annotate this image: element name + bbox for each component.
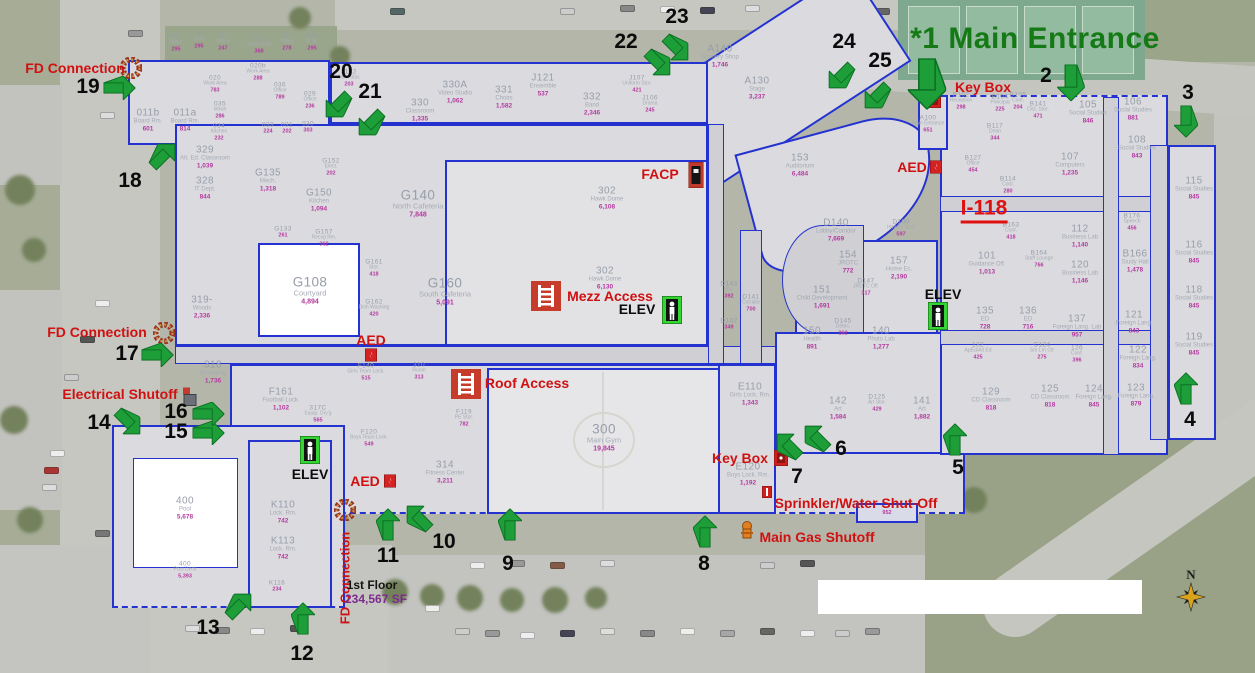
room-label: 119Social Studies845 bbox=[1175, 331, 1213, 356]
room-name: Study Hall bbox=[1121, 260, 1148, 267]
room-sqft: 362 bbox=[312, 241, 337, 247]
room-sqft: 303 bbox=[302, 128, 314, 134]
room-name: Band bbox=[583, 103, 601, 110]
parked-car bbox=[720, 630, 735, 637]
map-annotation: ELEV bbox=[292, 466, 329, 482]
room-label: 034Kitchen232 bbox=[211, 122, 228, 141]
entrance-number-5: 5 bbox=[952, 456, 964, 480]
room-number: E110 bbox=[729, 381, 770, 392]
entrance-number-4: 4 bbox=[1184, 408, 1196, 432]
room-label: F119PE Stor.782 bbox=[455, 408, 473, 427]
room-sqft: 772 bbox=[838, 267, 858, 274]
room-number: 101 bbox=[969, 250, 1006, 261]
map-annotation: FACP bbox=[641, 166, 678, 182]
room-sqft: 202 bbox=[322, 170, 340, 176]
room-name: Hawk Dome bbox=[591, 197, 624, 204]
green-arrow-icon bbox=[193, 402, 225, 426]
room-label: 107Computers1,235 bbox=[1055, 151, 1084, 176]
sprinkler-marker bbox=[762, 486, 772, 498]
room-sqft: 5,393 bbox=[174, 573, 197, 579]
aerial-ground bbox=[1214, 88, 1255, 450]
room-number: G140 bbox=[393, 187, 444, 202]
room-number: 125 bbox=[1030, 383, 1069, 394]
room-name: Mech. bbox=[255, 179, 281, 186]
room-label: 140Photo Lab1,277 bbox=[867, 325, 894, 350]
room-name: Foreign Lang. bbox=[1119, 356, 1156, 363]
parked-car bbox=[700, 7, 715, 14]
entrance-number-17: 17 bbox=[115, 342, 138, 366]
parked-car bbox=[95, 530, 110, 537]
green-arrow-icon bbox=[498, 509, 522, 541]
room-label: D100Hawk's Nest597 bbox=[887, 218, 915, 237]
tree bbox=[0, 406, 28, 434]
room-name: Choirs bbox=[495, 96, 513, 103]
room-sqft: 471 bbox=[1027, 113, 1049, 119]
room-label: 020aWork Area368 bbox=[247, 35, 270, 54]
map-annotation: Sprinkler/Water Shut-Off bbox=[775, 495, 938, 511]
room-label: J121Ensemble537 bbox=[530, 72, 557, 97]
room-name: Ensemble bbox=[530, 84, 557, 91]
room-name: Foreign Lang. bbox=[1075, 395, 1112, 402]
room-sqft: 1,102 bbox=[262, 404, 299, 411]
room-sqft: 262 bbox=[834, 330, 851, 336]
ladder-marker bbox=[451, 369, 481, 399]
room-number: 121 bbox=[1115, 309, 1152, 320]
room-name: Business Lab bbox=[1062, 235, 1098, 242]
room-label: 300Main Gym19,845 bbox=[587, 421, 621, 452]
room-number: 135 bbox=[976, 305, 994, 316]
room-name: Receiving bbox=[200, 371, 226, 378]
room-sqft: 295 bbox=[193, 43, 205, 49]
room-sqft: 2,346 bbox=[583, 109, 601, 116]
parked-car bbox=[44, 467, 59, 474]
room-sqft: 742 bbox=[269, 553, 296, 560]
room-label: 123Foreign Lang.879 bbox=[1117, 382, 1154, 407]
room-label: 129CD Classroom818 bbox=[971, 386, 1010, 411]
room-label: 118Social Studies845 bbox=[1175, 284, 1213, 309]
room-name: Alt. Ed. Classroom bbox=[180, 156, 230, 163]
tree bbox=[17, 507, 43, 533]
elevator-icon bbox=[928, 302, 948, 330]
map-annotation: N bbox=[1186, 567, 1195, 583]
room-name: Social Studies bbox=[1175, 296, 1213, 303]
map-annotation: FD Connection bbox=[47, 324, 147, 340]
room-label: 317CEquip. Dry'g565 bbox=[304, 404, 331, 423]
room-label: 314Fitness Center3,211 bbox=[425, 459, 464, 484]
room-label: G160South Cafeteria5,091 bbox=[419, 275, 471, 306]
room-label: 023Office247 bbox=[217, 32, 230, 51]
parked-car bbox=[390, 8, 405, 15]
room-sqft: 1,235 bbox=[1055, 169, 1084, 176]
room-label: 332Band2,346 bbox=[583, 91, 601, 116]
room-number: 124 bbox=[1075, 383, 1112, 394]
room-number: 302 bbox=[591, 185, 624, 196]
room-label: 115Social Studies845 bbox=[1175, 175, 1213, 200]
room-sqft: 288 bbox=[246, 75, 269, 81]
map-annotation: AED bbox=[897, 159, 927, 175]
room-number: 011a bbox=[171, 107, 200, 118]
room-number: G160 bbox=[419, 275, 471, 290]
room-sqft: 5,678 bbox=[176, 513, 194, 520]
room-label: 157Home Ec.2,190 bbox=[886, 255, 912, 280]
room-sqft: 368 bbox=[247, 48, 270, 54]
room-name: Girls Lock. Rm. bbox=[729, 393, 770, 400]
room-number: 153 bbox=[786, 152, 815, 163]
room-sqft: 6,108 bbox=[591, 203, 624, 210]
room-name: Foreign Lang. Lab bbox=[1053, 325, 1102, 332]
room-label: B127Office454 bbox=[965, 154, 982, 173]
room-label: 124Foreign Lang.845 bbox=[1075, 383, 1112, 408]
room-sqft: 19,845 bbox=[587, 445, 621, 453]
entrance-number-2: 2 bbox=[1040, 64, 1052, 88]
room-label: K116234 bbox=[269, 579, 285, 592]
entrance-number-12: 12 bbox=[290, 642, 313, 666]
room-label: 116Social Studies845 bbox=[1175, 239, 1213, 264]
room-sqft: 421 bbox=[622, 87, 651, 93]
room-label: G162Dish Washing420 bbox=[359, 298, 390, 317]
campus-emergency-map: 021Office295022Conf295023Office247020aWo… bbox=[0, 0, 1255, 673]
room-sqft: 818 bbox=[1030, 401, 1069, 408]
room-sqft: 537 bbox=[530, 90, 557, 97]
entrance-number-3: 3 bbox=[1182, 81, 1194, 105]
room-name: Art bbox=[913, 407, 931, 414]
room-label: 154JROTC772 bbox=[838, 249, 858, 274]
room-name: Health bbox=[803, 337, 821, 344]
room-name: Lobby/Corridor bbox=[816, 229, 856, 236]
room-sqft: 1,094 bbox=[306, 205, 332, 212]
map-annotation: I-118 bbox=[961, 197, 1008, 224]
room-number: 154 bbox=[838, 249, 858, 260]
room-name: Boys Lock. Rm. bbox=[727, 473, 769, 480]
green-arrow-icon bbox=[1057, 64, 1085, 101]
room-label: A140Scenery Shop1,746 bbox=[701, 43, 739, 68]
room-label: F120Boys Team Lock.549 bbox=[350, 428, 388, 447]
room-sqft: 1,039 bbox=[180, 162, 230, 169]
room-name: Main Gym bbox=[587, 436, 621, 444]
room-number: 115 bbox=[1175, 175, 1213, 186]
room-sqft: 766 bbox=[1025, 262, 1053, 268]
room-sqft: 1,736 bbox=[200, 377, 226, 384]
room-name: Child Development bbox=[797, 296, 848, 303]
room-sqft: 1,691 bbox=[797, 302, 848, 309]
parked-car bbox=[800, 560, 815, 567]
room-sqft: 1,146 bbox=[1062, 277, 1098, 284]
room-label: B164Staff Lounge766 bbox=[1025, 249, 1053, 268]
room-number: 123 bbox=[1117, 382, 1154, 393]
room-sqft: 1,582 bbox=[495, 102, 513, 109]
room-label: 330AVideo Studio1,062 bbox=[438, 79, 472, 104]
room-number: A140 bbox=[701, 43, 739, 54]
room-label: 141Art1,882 bbox=[913, 395, 931, 420]
entrance-arrow-9 bbox=[498, 509, 522, 546]
parked-car bbox=[455, 628, 470, 635]
map-annotation: AED bbox=[356, 332, 386, 348]
room-number: K110 bbox=[269, 499, 296, 510]
map-annotation: Electrical Shutoff bbox=[62, 386, 177, 402]
green-arrow-icon bbox=[1174, 106, 1198, 138]
room-sqft: 454 bbox=[965, 167, 982, 173]
room-sqft: 843 bbox=[1115, 327, 1152, 334]
parked-car bbox=[560, 630, 575, 637]
map-annotation: FD Connection bbox=[25, 60, 125, 76]
room-sqft: 275 bbox=[1030, 354, 1054, 360]
room-sqft: 2,336 bbox=[191, 312, 213, 319]
room-label: 318Receiving1,736 bbox=[200, 359, 226, 384]
room-sqft: 834 bbox=[1119, 362, 1156, 369]
room-sqft: 843 bbox=[1118, 152, 1156, 159]
room-sqft: 425 bbox=[965, 354, 992, 360]
room-label: 020Work Area783 bbox=[203, 74, 226, 93]
room-name: Home Ec. bbox=[886, 267, 912, 274]
room-sqft: 396 bbox=[1071, 357, 1083, 363]
tree bbox=[457, 585, 483, 611]
room-label: 011aBoard Rm.814 bbox=[171, 107, 200, 132]
entrance-number-10: 10 bbox=[432, 530, 455, 554]
room-name: Video Studio bbox=[438, 91, 472, 98]
room-name: Photo Lab bbox=[867, 337, 894, 344]
room-name: Social Studies bbox=[1175, 251, 1213, 258]
room-name: South Cafeteria bbox=[419, 290, 471, 298]
green-arrow-icon bbox=[104, 76, 136, 100]
room-label: D125Art Stor.429 bbox=[868, 393, 886, 412]
aerial-ground bbox=[0, 290, 62, 510]
room-label: 120Business Lab1,146 bbox=[1062, 259, 1098, 284]
room-sqft: 782 bbox=[455, 421, 473, 427]
room-sqft: 1,335 bbox=[406, 115, 435, 122]
room-number: G150 bbox=[306, 187, 332, 198]
room-name: Art bbox=[829, 407, 847, 414]
room-name: Lock. Rm. bbox=[269, 511, 296, 518]
room-label: 153Auditorium6,484 bbox=[786, 152, 815, 177]
aerial-ground bbox=[390, 555, 935, 673]
room-label: 302Hawk Dome6,130 bbox=[589, 265, 622, 290]
parked-car bbox=[95, 300, 110, 307]
room-sqft: 349 bbox=[720, 325, 737, 331]
room-sqft: 789 bbox=[274, 94, 287, 100]
room-label: B163Conf.418 bbox=[1003, 221, 1020, 240]
room-label: 036Office789 bbox=[274, 81, 287, 100]
gas-marker bbox=[740, 520, 754, 540]
room-label: K110Lock. Rm.742 bbox=[269, 499, 296, 524]
room-number: 122 bbox=[1119, 344, 1156, 355]
map-annotation: AED bbox=[350, 473, 380, 489]
entrance-number-9: 9 bbox=[502, 552, 514, 576]
room-name: North Cafeteria bbox=[393, 202, 444, 210]
room-label: 030303 bbox=[302, 120, 314, 133]
map-annotation: *1 Main Entrance bbox=[910, 22, 1160, 56]
room-label: 302Hawk Dome6,108 bbox=[591, 185, 624, 210]
room-name: IT Dept. bbox=[194, 187, 215, 194]
room-number: 031 bbox=[281, 121, 293, 128]
room-name: ED bbox=[1019, 317, 1037, 324]
room-name: Pool bbox=[176, 507, 194, 514]
room-label: D147JROTC Off.317 bbox=[853, 277, 879, 296]
room-label: D141Corridor700 bbox=[742, 293, 760, 312]
room-label: 031202 bbox=[281, 121, 293, 134]
ladder-access-icon bbox=[531, 281, 561, 311]
green-arrow-icon bbox=[693, 516, 717, 548]
parked-car bbox=[250, 628, 265, 635]
room-label: D143Stor.392 bbox=[720, 280, 737, 299]
room-name: Foreign Lang. bbox=[1115, 321, 1152, 328]
room-sqft: 515 bbox=[347, 375, 384, 381]
room-sqft: 236 bbox=[304, 103, 317, 109]
entrance-number-20: 20 bbox=[329, 60, 352, 84]
parked-car bbox=[550, 562, 565, 569]
room-sqft: 280 bbox=[1000, 188, 1016, 194]
entrance-arrow-12 bbox=[291, 603, 315, 640]
ladder-access-icon bbox=[451, 369, 481, 399]
entrance-number-8: 8 bbox=[698, 552, 710, 576]
room-label: B114Conf.280 bbox=[1000, 175, 1016, 194]
room-sqft: 295 bbox=[170, 46, 183, 52]
room-number: 329 bbox=[180, 144, 230, 155]
entrance-number-18: 18 bbox=[118, 169, 141, 193]
room-name: Guidance Off. bbox=[969, 262, 1006, 269]
room-number: 119 bbox=[1175, 331, 1213, 342]
parked-car bbox=[865, 628, 880, 635]
room-sqft: 420 bbox=[359, 311, 390, 317]
room-sqft: 2,190 bbox=[886, 273, 912, 280]
room-name: Courtyard bbox=[293, 289, 328, 297]
room-sqft: 845 bbox=[1175, 257, 1213, 264]
room-label: 122Foreign Lang.834 bbox=[1119, 344, 1156, 369]
room-sqft: 845 bbox=[1075, 401, 1112, 408]
room-number: B166 bbox=[1121, 248, 1148, 259]
room-sqft: 418 bbox=[365, 271, 383, 277]
room-label: C124Sm Lrn Ctr275 bbox=[1030, 341, 1054, 360]
parked-car bbox=[425, 605, 440, 612]
room-sqft: 818 bbox=[971, 404, 1010, 411]
room-number: 330 bbox=[406, 97, 435, 108]
room-sqft: 845 bbox=[1175, 349, 1213, 356]
tree bbox=[22, 238, 46, 262]
entrance-number-14: 14 bbox=[87, 411, 110, 435]
aed-icon bbox=[384, 475, 396, 488]
room-label: 108Social Studies843 bbox=[1118, 134, 1156, 159]
room-number: A130 bbox=[745, 75, 770, 86]
parked-car bbox=[560, 8, 575, 15]
room-name: Social Studies bbox=[1175, 343, 1213, 350]
aerial-ground bbox=[0, 85, 62, 185]
tree bbox=[500, 588, 524, 612]
room-name: Fitness Center bbox=[425, 471, 464, 478]
entrance-number-11: 11 bbox=[377, 544, 399, 568]
parked-car bbox=[760, 562, 775, 569]
room-sqft: 565 bbox=[304, 417, 331, 423]
room-sqft: 1,013 bbox=[969, 268, 1006, 275]
parked-car bbox=[760, 628, 775, 635]
room-name: CD Classroom bbox=[971, 398, 1010, 405]
room-label: 310Room313 bbox=[412, 361, 425, 380]
parked-car bbox=[470, 562, 485, 569]
room-name: Stage bbox=[745, 87, 770, 94]
room-label: G133261 bbox=[274, 225, 292, 238]
map-annotation: Key Box bbox=[712, 450, 768, 466]
aed-icon bbox=[930, 161, 942, 174]
room-number: 142 bbox=[829, 395, 847, 406]
room-sqft: 728 bbox=[976, 323, 994, 330]
room-number: 118 bbox=[1175, 284, 1213, 295]
room-number: D142 bbox=[720, 317, 737, 324]
green-arrow-icon bbox=[943, 424, 967, 456]
parked-car bbox=[600, 628, 615, 635]
room-name: Woods bbox=[191, 306, 213, 313]
entrance-number-21: 21 bbox=[358, 80, 381, 104]
room-number: 331 bbox=[495, 84, 513, 95]
aed-marker bbox=[365, 349, 377, 362]
room-sqft: 7,669 bbox=[816, 235, 856, 242]
room-label: 035Wksh286 bbox=[214, 100, 227, 119]
room-number: 302 bbox=[589, 265, 622, 276]
room-number: 129 bbox=[971, 386, 1010, 397]
room-label: G140North Cafeteria7,848 bbox=[393, 187, 444, 218]
room-number: K116 bbox=[269, 579, 285, 586]
room-sqft: 4,894 bbox=[293, 298, 328, 306]
room-number: 137 bbox=[1053, 313, 1102, 324]
room-label: 126Conf.396 bbox=[1071, 344, 1083, 363]
green-arrow-icon bbox=[142, 343, 174, 367]
room-name: Board Rm. bbox=[134, 119, 163, 126]
room-label: 011bBoard Rm.601 bbox=[134, 107, 163, 132]
room-number: G108 bbox=[293, 274, 328, 289]
room-name: Kitchen bbox=[306, 199, 332, 206]
room-sqft: 202 bbox=[281, 129, 293, 135]
room-sqft: 429 bbox=[868, 406, 886, 412]
room-label: 150Health891 bbox=[803, 325, 821, 350]
room-label: 132ApEd/Alt Ed425 bbox=[965, 341, 992, 360]
room-label: 151Child Development1,691 bbox=[797, 284, 848, 309]
room-sqft: 278 bbox=[281, 45, 294, 51]
room-number: 319- bbox=[191, 294, 213, 305]
room-label: 400Pool Deck5,393 bbox=[174, 560, 197, 579]
room-number: 011b bbox=[134, 107, 163, 118]
entrance-arrow-19 bbox=[99, 76, 136, 100]
green-arrow-icon bbox=[1174, 373, 1198, 405]
room-name: Social Studies bbox=[1069, 111, 1107, 118]
room-sqft: 845 bbox=[1175, 302, 1213, 309]
entrance-number-19: 19 bbox=[76, 75, 99, 99]
tree bbox=[5, 175, 35, 205]
room-name: Social Studies bbox=[1114, 108, 1152, 115]
room-sqft: 418 bbox=[1003, 234, 1020, 240]
room-name: Hawk Dome bbox=[589, 277, 622, 284]
entrance-arrow-2 bbox=[1057, 59, 1085, 102]
room-label: G135Mech.1,318 bbox=[255, 167, 281, 192]
room-number: 157 bbox=[886, 255, 912, 266]
room-label: D140Lobby/Corridor7,669 bbox=[816, 217, 856, 242]
fd-connection-wreath-icon bbox=[334, 499, 356, 521]
room-number: 330A bbox=[438, 79, 472, 90]
room-sqft: 957 bbox=[1053, 331, 1102, 338]
map-annotation: Main Gas Shutoff bbox=[759, 529, 874, 545]
room-name: Auditorium bbox=[786, 164, 815, 171]
room-label: 125CD Classroom818 bbox=[1030, 383, 1069, 408]
room-sqft: 3,211 bbox=[425, 477, 464, 484]
room-label: 026In Sv295 bbox=[306, 32, 318, 51]
room-label: K113Lock. Rm.742 bbox=[269, 535, 296, 560]
ladder-marker bbox=[531, 281, 561, 311]
room-number: 140 bbox=[867, 325, 894, 336]
room-sqft: 1,062 bbox=[438, 97, 472, 104]
room-sqft: 1,478 bbox=[1121, 266, 1148, 273]
room-sqft: 317 bbox=[853, 290, 879, 296]
room-number: 328 bbox=[194, 175, 215, 186]
room-number: 300 bbox=[587, 421, 621, 436]
entrance-number-7: 7 bbox=[791, 465, 803, 489]
room-name: CD Classroom bbox=[1030, 395, 1069, 402]
room-number: K113 bbox=[269, 535, 296, 546]
